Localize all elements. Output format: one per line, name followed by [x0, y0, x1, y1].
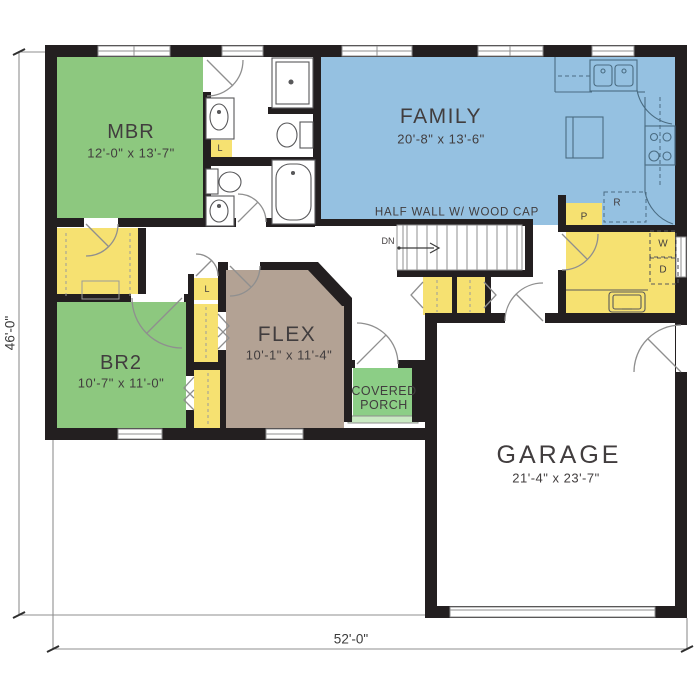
room-dims-br2: 10'-7" x 11'-0" [78, 377, 165, 392]
stairs-dn-label: DN [382, 236, 395, 246]
washer-label: W [658, 238, 667, 249]
mbr-walkin-closet-fill [57, 228, 138, 302]
room-dims-flex: 10'-1" x 11'-4" [246, 349, 333, 364]
linen-master-label: L [217, 143, 222, 153]
room-dims-mbr: 12'-0" x 13'-7" [87, 147, 174, 162]
room-dims-family: 20'-8" x 13'-6" [397, 133, 484, 148]
entry-closet-b-fill [457, 277, 485, 315]
room-label-br2: BR2 [100, 352, 142, 374]
room-label-family: FAMILY [400, 105, 482, 129]
linen-hall-label: L [204, 284, 209, 294]
dimension-width: 52'-0" [334, 631, 368, 646]
dryer-label: D [659, 264, 666, 275]
dimension-depth: 46'-0" [2, 316, 17, 350]
room-label-garage: GARAGE [497, 441, 622, 469]
hall-toilet-tank [206, 169, 218, 194]
master-toilet [277, 123, 297, 147]
porch-step [348, 416, 418, 423]
floor-plan: MBR 12'-0" x 13'-7" FAMILY 20'-8" x 13'-… [0, 0, 700, 700]
room-label-flex: FLEX [258, 323, 317, 347]
garage-door [450, 607, 655, 617]
pantry-label: P [581, 211, 588, 222]
room-dims-garage: 21'-4" x 23'-7" [512, 472, 599, 487]
refrigerator-label: R [613, 197, 620, 208]
room-label-porch: COVERED PORCH [344, 384, 424, 412]
entry-closet-a-fill [423, 277, 453, 315]
master-toilet-tank [300, 122, 313, 148]
hall-toilet [219, 172, 241, 192]
floor-plan-linework [0, 0, 700, 700]
room-label-mbr: MBR [107, 121, 154, 143]
half-wall-note: HALF WALL W/ WOOD CAP [375, 207, 539, 220]
